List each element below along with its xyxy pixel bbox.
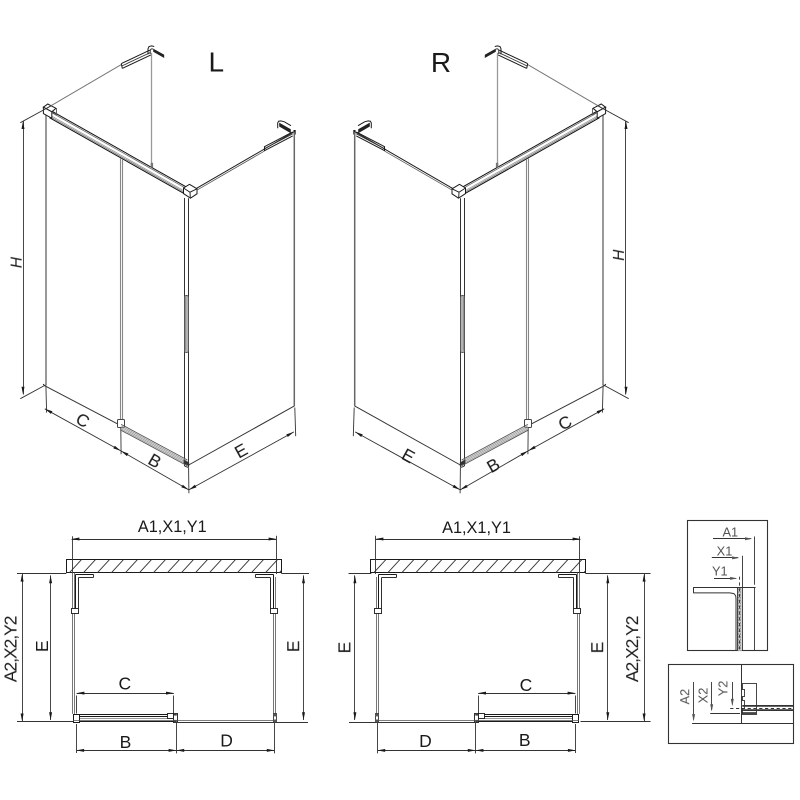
svg-text:C: C xyxy=(555,411,576,435)
svg-text:A1,X1,Y1: A1,X1,Y1 xyxy=(442,519,511,537)
svg-text:H: H xyxy=(611,249,628,261)
svg-text:B: B xyxy=(120,732,132,752)
svg-text:A1: A1 xyxy=(722,524,738,539)
svg-text:E: E xyxy=(231,439,251,462)
svg-text:H: H xyxy=(9,256,26,268)
svg-text:D: D xyxy=(220,731,233,751)
svg-text:R: R xyxy=(431,47,451,78)
svg-text:B: B xyxy=(483,454,503,477)
svg-text:E: E xyxy=(587,642,607,654)
svg-text:E: E xyxy=(32,640,52,652)
svg-text:Y1: Y1 xyxy=(712,564,728,579)
svg-text:Y2: Y2 xyxy=(715,681,730,697)
svg-text:A2: A2 xyxy=(677,689,692,705)
svg-text:A2,X2,Y2: A2,X2,Y2 xyxy=(622,616,642,682)
svg-text:C: C xyxy=(72,408,93,432)
svg-text:X1: X1 xyxy=(717,544,733,559)
svg-text:B: B xyxy=(519,730,531,750)
svg-text:C: C xyxy=(520,675,533,695)
svg-text:E: E xyxy=(283,640,303,652)
svg-text:X2: X2 xyxy=(696,688,711,704)
svg-text:A2,X2,Y2: A2,X2,Y2 xyxy=(0,616,20,682)
svg-text:L: L xyxy=(209,47,225,78)
svg-text:B: B xyxy=(145,449,165,472)
svg-text:E: E xyxy=(398,444,418,467)
svg-text:E: E xyxy=(334,642,354,654)
svg-text:D: D xyxy=(419,731,432,751)
svg-text:A1,X1,Y1: A1,X1,Y1 xyxy=(138,518,207,536)
svg-text:C: C xyxy=(118,674,131,694)
